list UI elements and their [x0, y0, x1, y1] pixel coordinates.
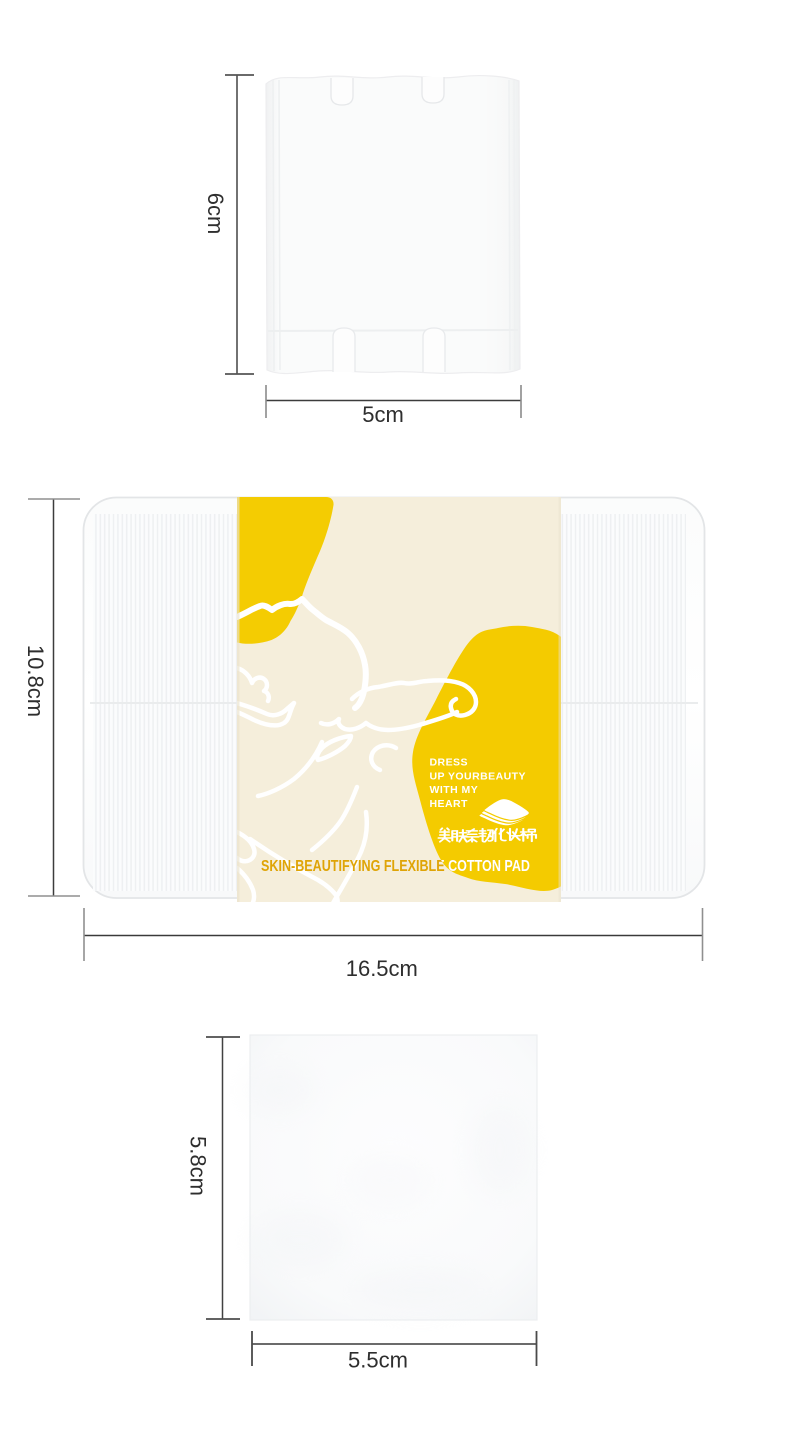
svg-text:UP YOURBEAUTY: UP YOURBEAUTY: [430, 770, 526, 782]
svg-text:5cm: 5cm: [362, 402, 404, 427]
svg-text:DRESS: DRESS: [430, 757, 468, 769]
svg-text:HEART: HEART: [430, 798, 469, 810]
svg-text:16.5cm: 16.5cm: [346, 956, 418, 981]
svg-text:6cm: 6cm: [203, 193, 228, 235]
svg-text:5.5cm: 5.5cm: [348, 1348, 408, 1373]
svg-text:WITH MY: WITH MY: [430, 784, 479, 796]
svg-text:5.8cm: 5.8cm: [186, 1136, 211, 1196]
svg-text:10.8cm: 10.8cm: [23, 645, 48, 717]
